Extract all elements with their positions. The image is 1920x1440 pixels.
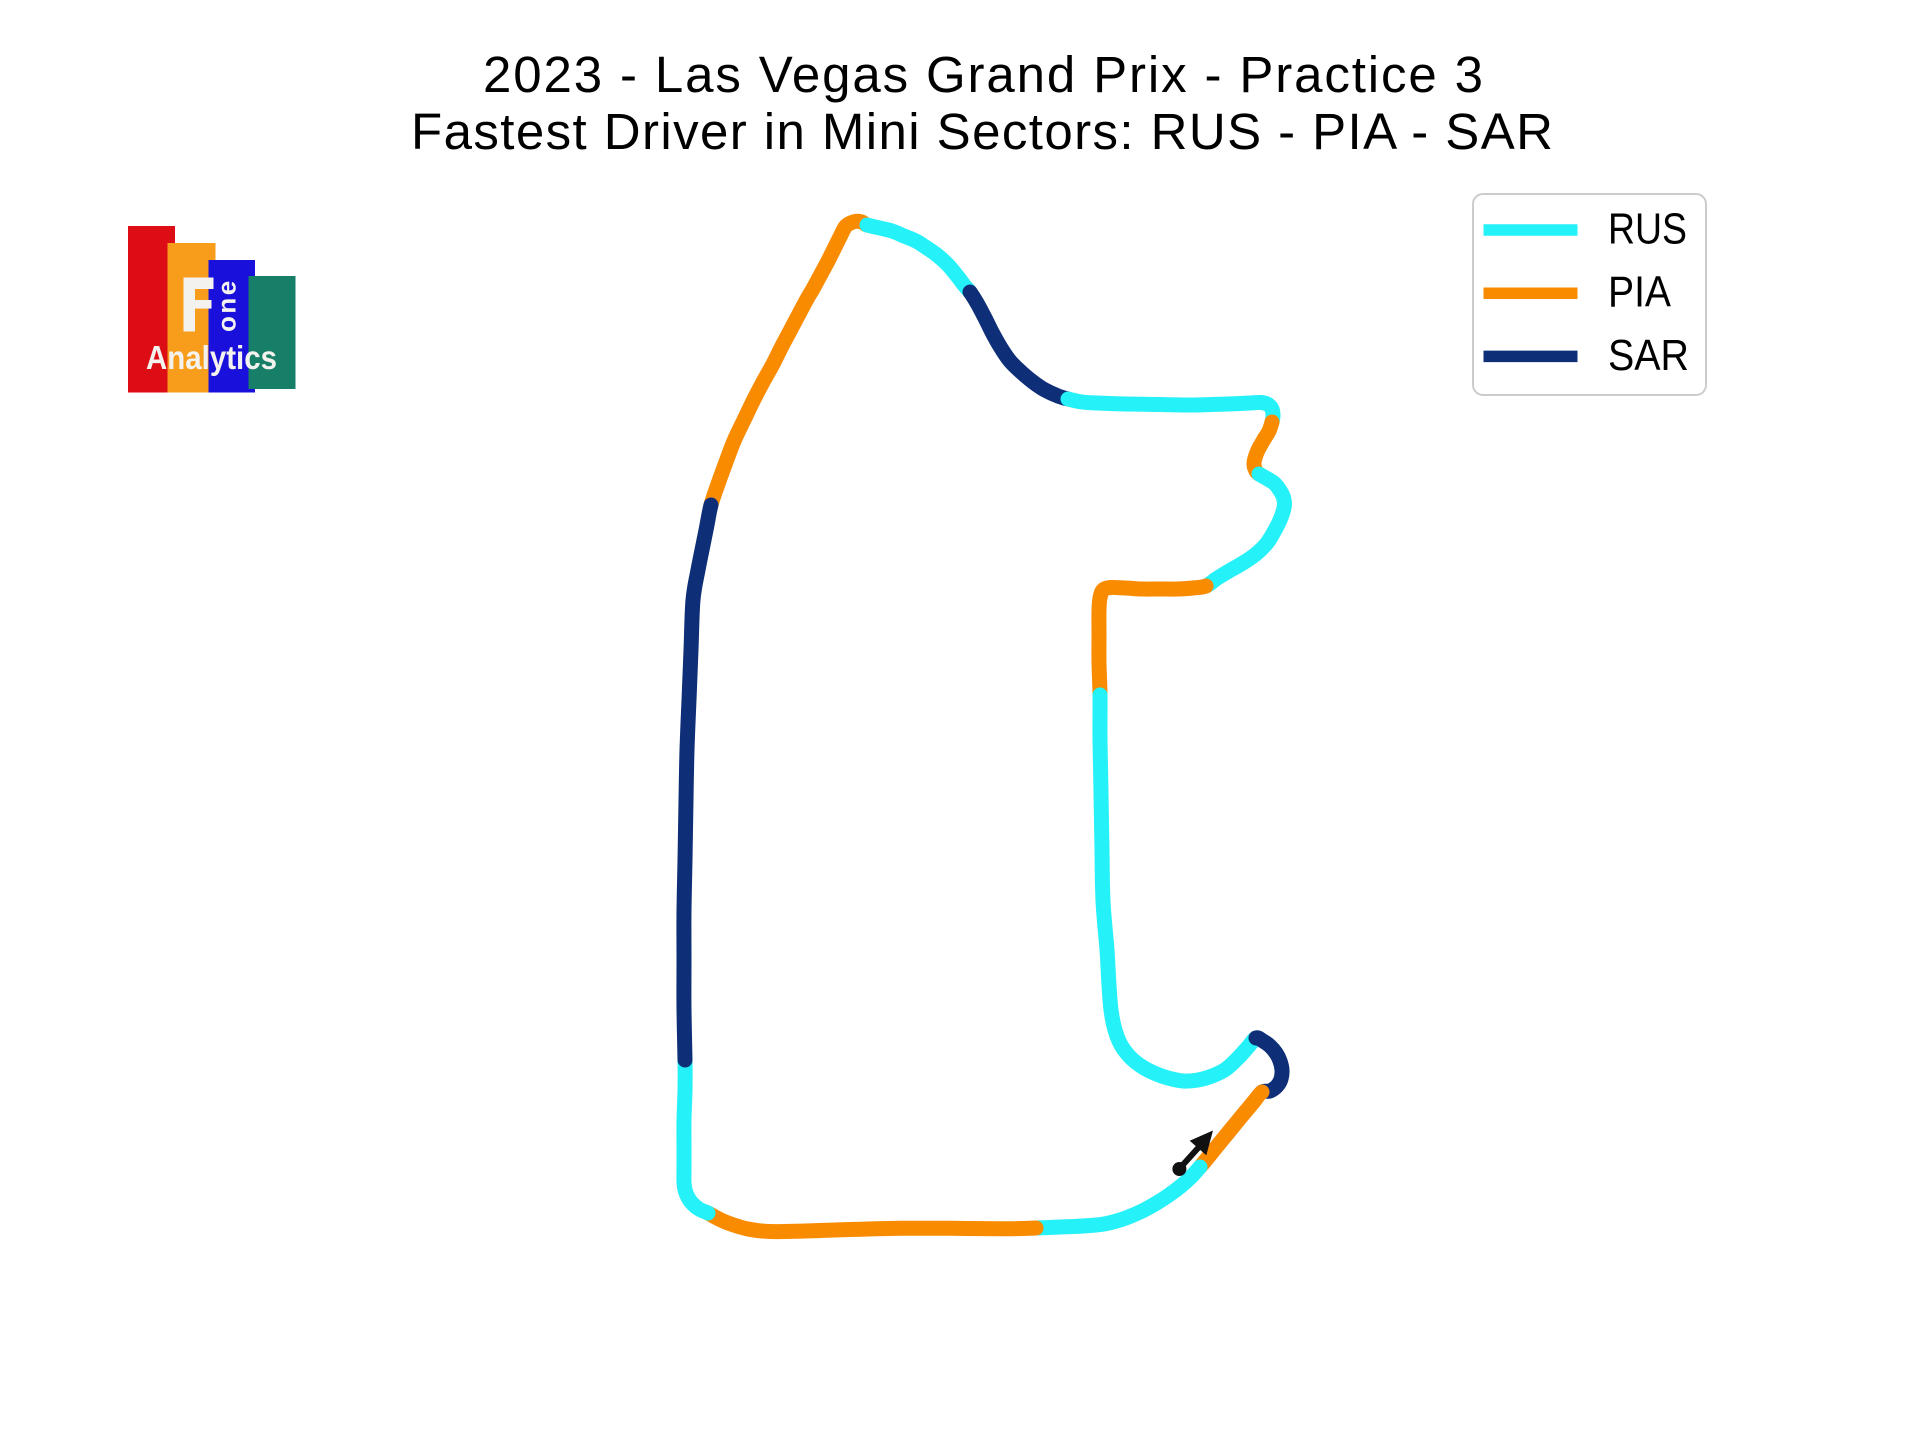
svg-text:RUS: RUS bbox=[1608, 205, 1687, 254]
svg-text:PIA: PIA bbox=[1608, 268, 1672, 317]
svg-text:one: one bbox=[212, 278, 242, 332]
svg-text:2023 - Las Vegas Grand Prix -: 2023 - Las Vegas Grand Prix - Practice 3 bbox=[483, 46, 1483, 103]
svg-text:SAR: SAR bbox=[1608, 331, 1689, 380]
svg-text:Fastest Driver in Mini Sectors: Fastest Driver in Mini Sectors: RUS - PI… bbox=[411, 103, 1553, 160]
svg-text:Analytics: Analytics bbox=[146, 339, 277, 376]
